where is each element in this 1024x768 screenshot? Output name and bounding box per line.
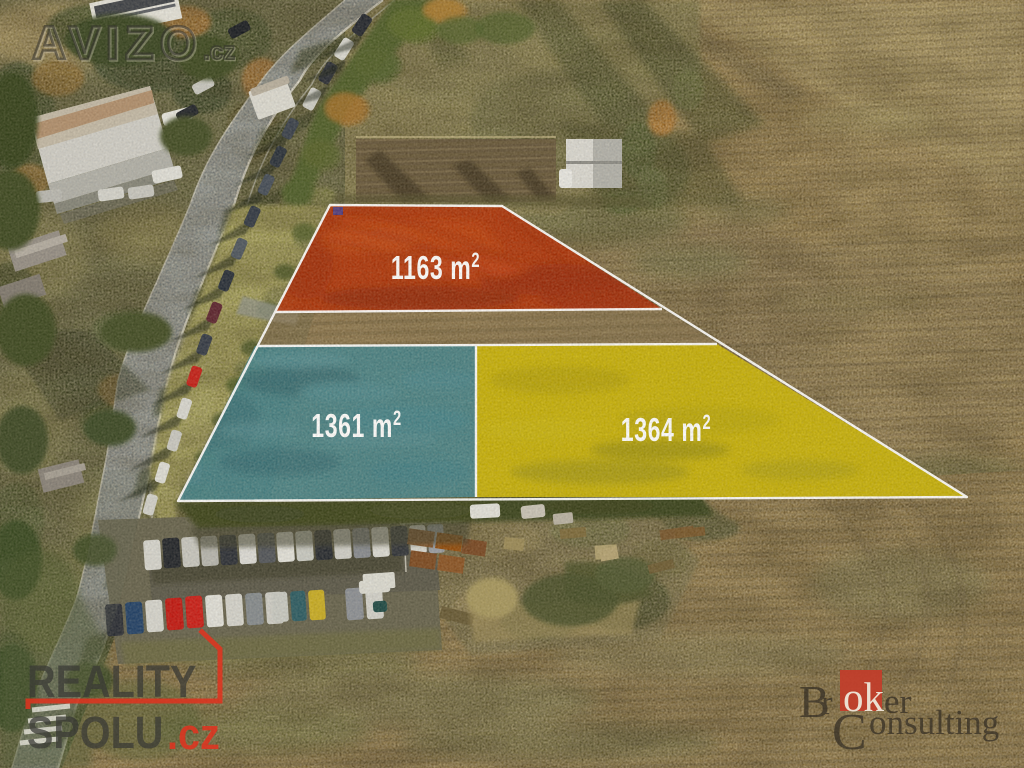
- svg-text:.cz: .cz: [167, 709, 220, 758]
- svg-text:ok: ok: [843, 674, 885, 720]
- svg-text:onsulting: onsulting: [869, 703, 999, 742]
- svg-text:.cz: .cz: [203, 38, 235, 65]
- svg-text:AVIZO: AVIZO: [32, 16, 202, 69]
- svg-text:SPOLU: SPOLU: [27, 708, 163, 758]
